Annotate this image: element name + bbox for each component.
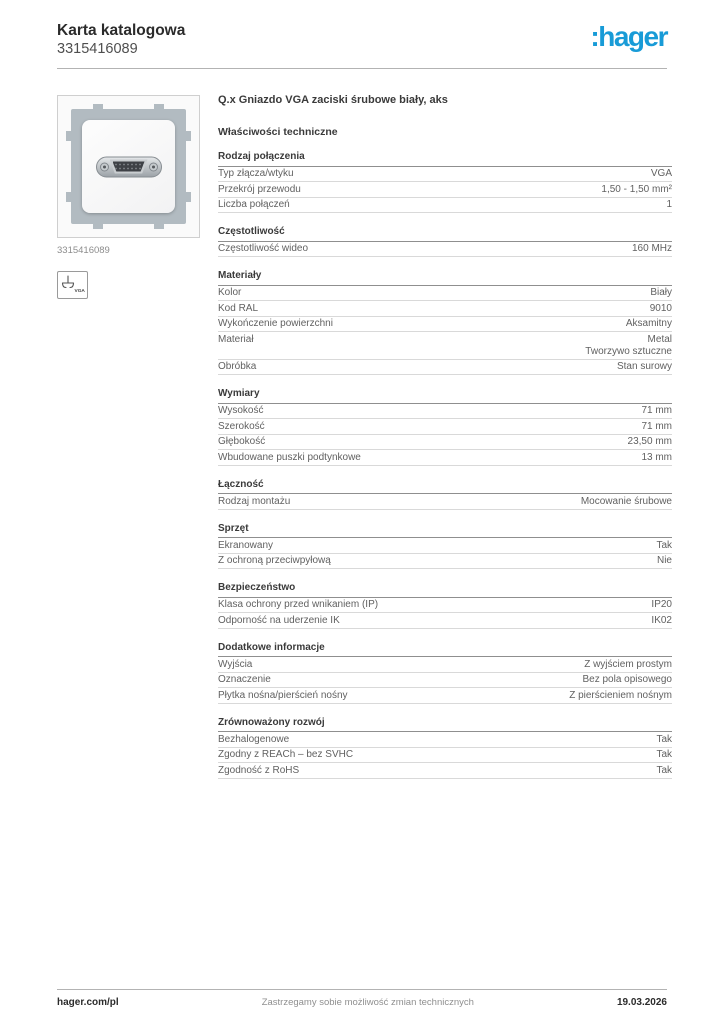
spec-value: 71 mm [641,421,672,433]
spec-section: SprzętEkranowanyTakZ ochroną przeciwpyło… [218,523,672,570]
screw-ear-right [149,162,158,171]
dsub-shell [110,160,148,174]
product-media-column: 3315416089 VGA [57,95,200,299]
section-heading: Sprzęt [218,523,672,539]
product-title: Q.x Gniazdo VGA zaciski śrubowe biały, a… [218,94,672,107]
spec-row: Zgodność z RoHSTak [218,763,672,779]
footer-date: 19.03.2026 [617,997,667,1008]
spec-row: Liczba połączeń1 [218,198,672,214]
spec-label: Liczba połączeń [218,199,290,211]
spec-value: Bez pola opisowego [582,674,672,686]
spec-value: 1,50 - 1,50 mm² [601,184,672,196]
spec-label: Przekrój przewodu [218,184,301,196]
spec-row: Wykończenie powierzchniAksamitny [218,317,672,333]
socket-symbol-drawing: VGA [58,272,87,298]
section-heading: Częstotliwość [218,226,672,242]
spec-value: Biały [650,287,672,299]
spec-value: Mocowanie śrubowe [581,496,672,508]
spec-label: Częstotliwość wideo [218,243,308,255]
datasheet-page: Karta katalogowa 3315416089 :hager [0,0,724,1024]
section-heading: Materiały [218,270,672,286]
spec-label: Szerokość [218,421,265,433]
spec-label: Wyjścia [218,659,252,671]
spec-label: Wykończenie powierzchni [218,318,333,330]
spec-row: Kod RAL9010 [218,301,672,317]
spec-value: Stan surowy [617,361,672,373]
spec-row: OznaczenieBez pola opisowego [218,673,672,689]
dsub-pin-field [113,162,145,172]
symbol-vga-label: VGA [75,288,86,294]
spec-row: Głębokość23,50 mm [218,435,672,451]
spec-value: Metal Tworzywo sztuczne [585,334,672,358]
spec-sections: Rodzaj połączeniaTyp złącza/wtykuVGAPrze… [218,151,672,779]
spec-column: Q.x Gniazdo VGA zaciski śrubowe biały, a… [218,94,672,779]
spec-label: Kolor [218,287,241,299]
hager-logo: :hager [590,23,667,51]
spec-value: Tak [656,765,672,777]
footer: hager.com/pl Zastrzegamy sobie możliwość… [57,997,667,1008]
spec-row: BezhalogenoweTak [218,732,672,748]
spec-row: EkranowanyTak [218,538,672,554]
spec-value: 160 MHz [632,243,672,255]
spec-label: Kod RAL [218,303,258,315]
spec-label: Z ochroną przeciwpyłową [218,555,331,567]
spec-value: Tak [656,734,672,746]
footer-disclaimer: Zastrzegamy sobie możliwość zmian techni… [262,997,474,1008]
spec-row: Płytka nośna/pierścień nośnyZ pierścieni… [218,688,672,704]
spec-value: Aksamitny [626,318,672,330]
frame-tab [66,131,71,141]
document-type: Karta katalogowa [57,21,667,40]
spec-row: WyjściaZ wyjściem prostym [218,657,672,673]
spec-value: VGA [651,168,672,180]
spec-value: Tak [656,540,672,552]
spec-row: Wysokość71 mm [218,404,672,420]
spec-label: Ekranowany [218,540,273,552]
photo-caption: 3315416089 [57,245,200,256]
spec-value: Z pierścieniem nośnym [569,690,672,702]
spec-label: Klasa ochrony przed wnikaniem (IP) [218,599,378,611]
spec-label: Wbudowane puszki podtynkowe [218,452,361,464]
spec-row: ObróbkaStan surowy [218,360,672,376]
spec-value: 13 mm [641,452,672,464]
section-heading: Rodzaj połączenia [218,151,672,167]
spec-section: MateriałyKolorBiałyKod RAL9010Wykończeni… [218,270,672,375]
vga-socket-symbol-icon: VGA [57,271,88,299]
spec-value: Tak [656,749,672,761]
spec-value: 9010 [650,303,672,315]
spec-row: Z ochroną przeciwpyłowąNie [218,554,672,570]
spec-label: Bezhalogenowe [218,734,289,746]
product-photo [57,95,200,238]
spec-row: Szerokość71 mm [218,419,672,435]
spec-section: WymiaryWysokość71 mmSzerokość71 mmGłębok… [218,388,672,466]
spec-value: Nie [657,555,672,567]
frame-tab [186,192,191,202]
spec-subtitle: Właściwości techniczne [218,126,672,138]
cover-plate [82,120,175,213]
spec-label: Zgodność z RoHS [218,765,299,777]
spec-row: Zgodny z REACh – bez SVHCTak [218,748,672,764]
spec-label: Odporność na uderzenie IK [218,615,340,627]
spec-section: Rodzaj połączeniaTyp złącza/wtykuVGAPrze… [218,151,672,213]
frame-tab [186,131,191,141]
spec-value: Z wyjściem prostym [584,659,672,671]
spec-label: Rodzaj montażu [218,496,290,508]
section-heading: Dodatkowe informacje [218,642,672,658]
frame-tab [93,104,103,109]
section-heading: Bezpieczeństwo [218,582,672,598]
spec-row: Częstotliwość wideo160 MHz [218,242,672,258]
spec-section: Dodatkowe informacjeWyjściaZ wyjściem pr… [218,642,672,704]
spec-label: Typ złącza/wtyku [218,168,294,180]
header-divider [57,68,667,69]
spec-value: IP20 [651,599,672,611]
section-heading: Łączność [218,479,672,495]
spec-value: 1 [666,199,672,211]
spec-section: Zrównoważony rozwójBezhalogenoweTakZgodn… [218,717,672,779]
frame-tab [154,224,164,229]
spec-section: BezpieczeństwoKlasa ochrony przed wnikan… [218,582,672,629]
spec-label: Wysokość [218,405,263,417]
spec-value: IK02 [651,615,672,627]
spec-section: ŁącznośćRodzaj montażuMocowanie śrubowe [218,479,672,510]
spec-section: CzęstotliwośćCzęstotliwość wideo160 MHz [218,226,672,257]
footer-website: hager.com/pl [57,997,119,1008]
header: Karta katalogowa 3315416089 :hager [57,21,667,59]
spec-row: Rodzaj montażuMocowanie śrubowe [218,494,672,510]
screw-ear-left [100,162,109,171]
spec-row: Przekrój przewodu1,50 - 1,50 mm² [218,182,672,198]
spec-row: Klasa ochrony przed wnikaniem (IP)IP20 [218,598,672,614]
spec-label: Oznaczenie [218,674,271,686]
spec-label: Materiał [218,334,254,346]
spec-row: Odporność na uderzenie IKIK02 [218,613,672,629]
spec-label: Obróbka [218,361,256,373]
spec-row: Wbudowane puszki podtynkowe13 mm [218,450,672,466]
spec-label: Głębokość [218,436,265,448]
spec-label: Zgodny z REACh – bez SVHC [218,749,353,761]
spec-value: 71 mm [641,405,672,417]
spec-row: KolorBiały [218,286,672,302]
frame-tab [154,104,164,109]
spec-row: MateriałMetal Tworzywo sztuczne [218,332,672,360]
spec-row: Typ złącza/wtykuVGA [218,167,672,183]
spec-value: 23,50 mm [628,436,672,448]
vga-connector [96,156,162,177]
frame-tab [66,192,71,202]
frame-tab [93,224,103,229]
header-product-number: 3315416089 [57,40,667,58]
spec-label: Płytka nośna/pierścień nośny [218,690,348,702]
section-heading: Zrównoważony rozwój [218,717,672,733]
footer-divider [57,989,667,990]
section-heading: Wymiary [218,388,672,404]
